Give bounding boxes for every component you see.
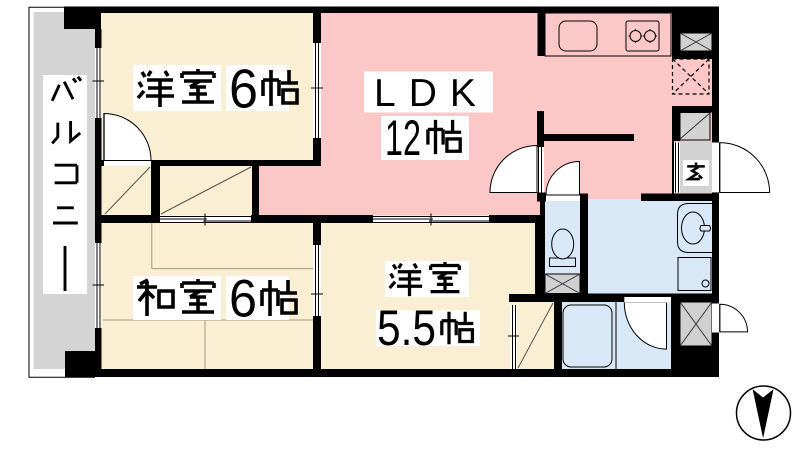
- svg-text:LDK: LDK: [374, 72, 489, 115]
- svg-text:6: 6: [229, 58, 258, 120]
- svg-text:5.5: 5.5: [377, 300, 436, 356]
- svg-text:12: 12: [385, 110, 421, 166]
- svg-text:6: 6: [229, 270, 257, 329]
